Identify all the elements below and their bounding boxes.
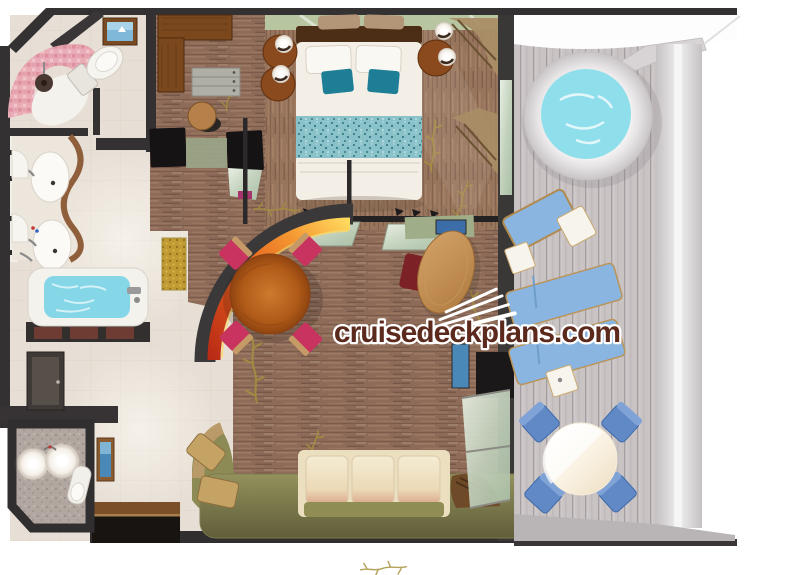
tan-pillow bbox=[318, 14, 360, 29]
headboard bbox=[296, 26, 422, 44]
corridor-picture-sky bbox=[100, 442, 111, 454]
white-pillow bbox=[356, 45, 402, 74]
bath-wall-doors bbox=[34, 327, 134, 339]
watermark-text: cruisedeckplans.com bbox=[334, 316, 620, 349]
picture-sky bbox=[107, 22, 133, 30]
round-basin bbox=[18, 449, 48, 479]
bedroom-balcony-window bbox=[500, 80, 512, 195]
sofa bbox=[298, 450, 450, 517]
hot-tap-dot bbox=[31, 226, 35, 230]
tan-pillow bbox=[364, 14, 404, 29]
mirror-handle bbox=[56, 380, 60, 384]
divider-post bbox=[243, 118, 248, 224]
sink-drain bbox=[51, 181, 55, 185]
black-luggage-bench bbox=[149, 127, 186, 167]
sink-drain bbox=[53, 249, 57, 253]
cold-tap-dot bbox=[35, 229, 39, 233]
sideboard-edge bbox=[92, 514, 180, 517]
cruise-suite-floorplan: cruisedeckplans.com bbox=[0, 0, 800, 575]
tub-faucet-icon bbox=[127, 287, 141, 294]
top-wall bbox=[46, 8, 737, 15]
shower-head-center bbox=[41, 80, 47, 86]
tub-tap bbox=[134, 297, 140, 303]
sink-basin bbox=[33, 220, 71, 270]
entry-inner-wall bbox=[93, 88, 100, 135]
entry-picture bbox=[103, 18, 137, 45]
round-stool bbox=[188, 102, 216, 130]
sofa-back-cushion bbox=[352, 456, 394, 504]
sofa-back-cushion bbox=[306, 456, 348, 504]
sage-wall-panel bbox=[186, 138, 227, 168]
hot-tub-water bbox=[541, 69, 631, 159]
floorplan-canvas: cruisedeckplans.com bbox=[0, 0, 800, 575]
sink-basin bbox=[31, 152, 69, 202]
bathtub-room bbox=[28, 268, 148, 326]
round-dining-table bbox=[230, 254, 310, 334]
powder-room bbox=[12, 424, 93, 528]
cup-icon bbox=[558, 378, 562, 382]
teal-accent-pillow bbox=[367, 69, 400, 95]
mirror-glass bbox=[32, 357, 59, 405]
drawer-handle bbox=[233, 89, 236, 92]
tap-dot bbox=[48, 445, 51, 448]
sofa-back-cushion bbox=[398, 456, 440, 504]
bathtub-water bbox=[44, 276, 130, 318]
teal-bed-runner bbox=[296, 116, 422, 158]
teal-accent-pillow bbox=[321, 68, 354, 94]
left-wall bbox=[0, 46, 10, 428]
wardrobe-top bbox=[158, 15, 232, 40]
sofa-seat-olive bbox=[304, 502, 444, 517]
blue-wall-art bbox=[452, 344, 469, 388]
vanity-top-wall bbox=[10, 128, 88, 136]
railing-stripe bbox=[674, 44, 682, 528]
drawer-handle bbox=[233, 80, 236, 83]
sideboard-cabinet bbox=[92, 516, 180, 543]
gold-bath-mat bbox=[162, 238, 186, 290]
drawer-handle bbox=[233, 71, 236, 74]
